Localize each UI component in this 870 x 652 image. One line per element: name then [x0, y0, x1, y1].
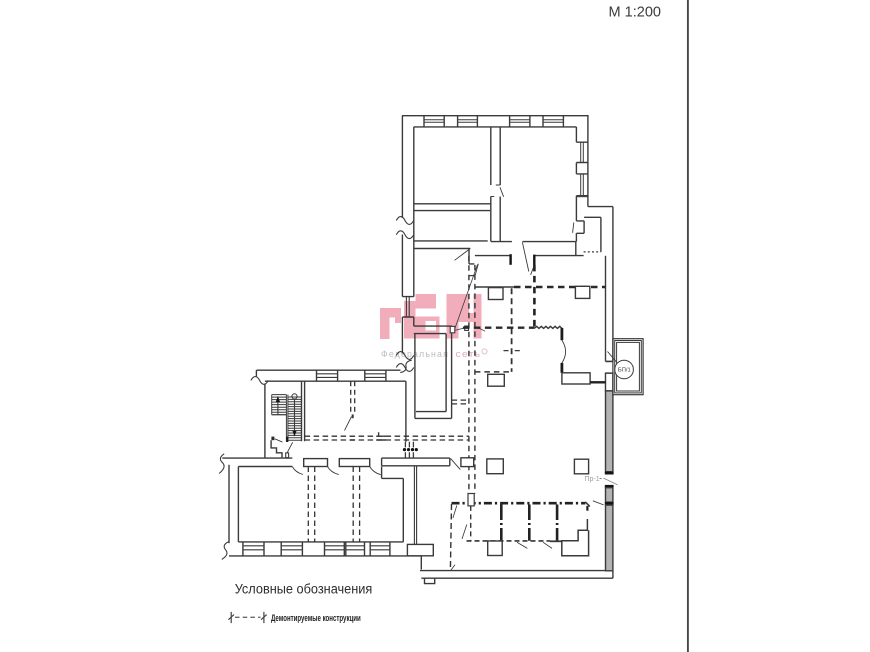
- svg-text:БП/1: БП/1: [618, 368, 631, 374]
- svg-text:Демонтируемые конструкции: Демонтируемые конструкции: [271, 613, 361, 623]
- svg-text:М 1:200: М 1:200: [609, 5, 662, 21]
- svg-text:Условные обозначения: Условные обозначения: [235, 581, 373, 596]
- svg-text:Пр-1: Пр-1: [585, 476, 600, 483]
